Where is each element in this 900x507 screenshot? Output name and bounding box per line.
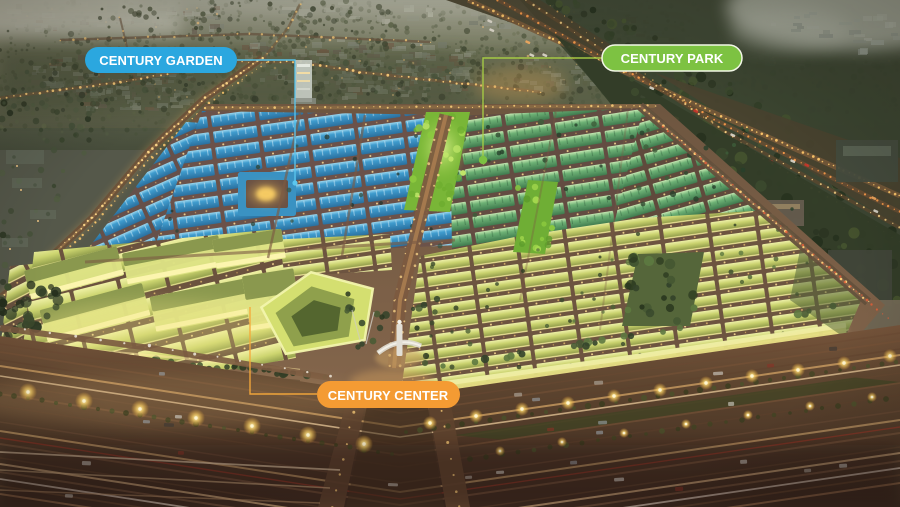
svg-text:CENTURY GARDEN: CENTURY GARDEN [99,53,222,68]
svg-text:CENTURY PARK: CENTURY PARK [621,51,724,66]
svg-text:CENTURY CENTER: CENTURY CENTER [328,388,449,403]
